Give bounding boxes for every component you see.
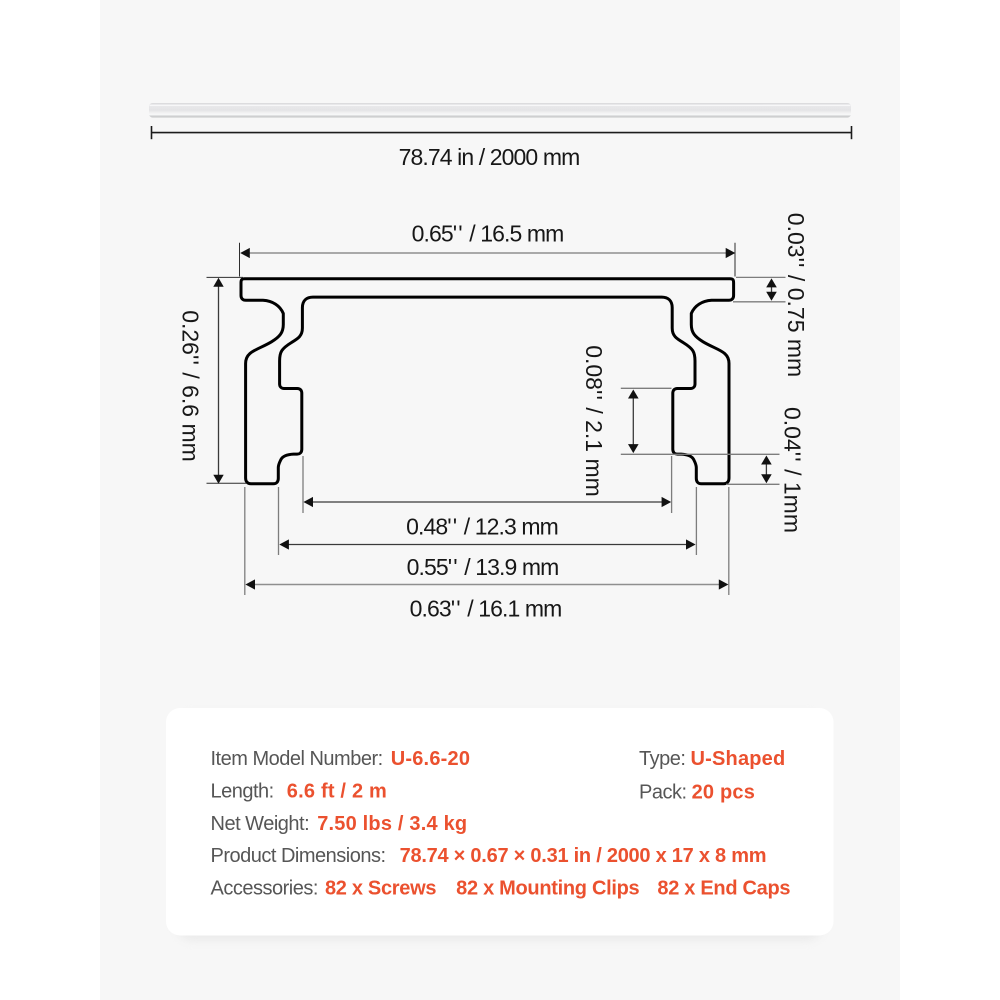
svg-text:0.08'' / 2.1 mm: 0.08'' / 2.1 mm	[581, 345, 607, 497]
svg-text:0.63'' / 16.1 mm: 0.63'' / 16.1 mm	[410, 596, 562, 622]
svg-text:Length: 6.6 ft / 2 m: Length: 6.6 ft / 2 m	[211, 781, 388, 803]
svg-text:78.74 in / 2000 mm: 78.74 in / 2000 mm	[399, 144, 580, 170]
svg-text:Product Dimensions: 78.74 × 0.: Product Dimensions: 78.74 × 0.67 × 0.31 …	[211, 845, 767, 867]
svg-text:0.26'' / 6.6 mm: 0.26'' / 6.6 mm	[178, 310, 204, 462]
svg-text:0.65'' / 16.5 mm: 0.65'' / 16.5 mm	[412, 221, 564, 247]
svg-text:Accessories: 82 x Screws82 x M: Accessories: 82 x Screws82 x Mounting Cl…	[211, 878, 791, 900]
svg-text:0.03'' / 0.75 mm: 0.03'' / 0.75 mm	[783, 213, 809, 377]
svg-text:Type: U-Shaped: Type: U-Shaped	[639, 748, 785, 770]
svg-text:0.55'' / 13.9 mm: 0.55'' / 13.9 mm	[407, 554, 559, 580]
svg-text:Item Model Number: U-6.6-20: Item Model Number: U-6.6-20	[211, 748, 471, 770]
svg-text:0.04'' / 1mm: 0.04'' / 1mm	[780, 407, 806, 533]
svg-text:0.48'' / 12.3 mm: 0.48'' / 12.3 mm	[406, 514, 558, 540]
svg-text:Net Weight: 7.50 lbs / 3.4 kg: Net Weight: 7.50 lbs / 3.4 kg	[211, 813, 468, 835]
svg-text:Pack: 20 pcs: Pack: 20 pcs	[639, 782, 755, 804]
